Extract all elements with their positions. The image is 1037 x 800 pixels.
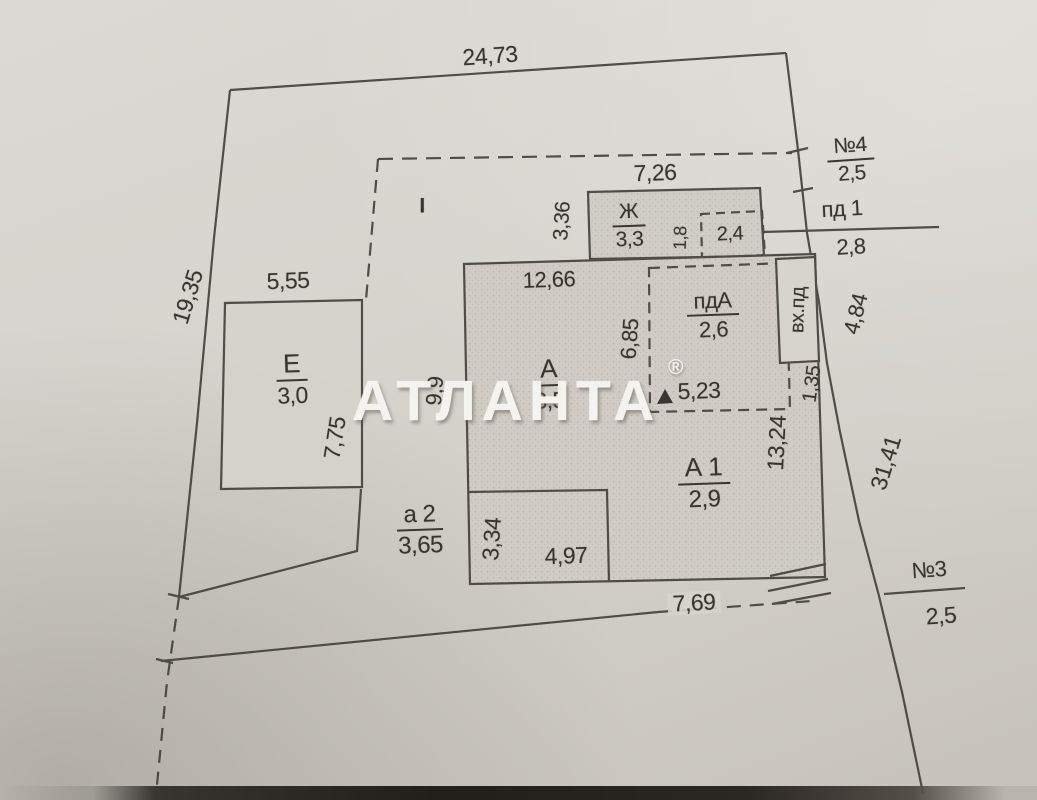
- dim-zh-inner-depth: 1,8: [671, 226, 690, 250]
- dim-a-width: 12,66: [522, 268, 575, 292]
- room-a1-letter: А 1: [677, 453, 730, 486]
- room-zh-area: 3,3: [615, 227, 644, 252]
- dim-a2-inner-side: 3,34: [479, 517, 505, 561]
- boundary-left-dashed-line: [156, 597, 179, 795]
- marker-n3-name: №3: [911, 558, 947, 582]
- marker-n4: №4 2,5: [826, 133, 877, 186]
- room-a1-area: 2,9: [688, 484, 721, 512]
- dim-zh-side: 3,36: [550, 201, 574, 241]
- dim-entry-side: 1,35: [800, 364, 825, 403]
- dim-pda-width: 5,23: [677, 379, 721, 403]
- n3-dimension-bar: [884, 588, 965, 594]
- dim-outer-bottom: 7,69: [667, 590, 721, 616]
- room-label-pda: пдА 2,6: [686, 288, 740, 342]
- yard-line-lower: [161, 612, 658, 661]
- agency-watermark: АТЛАНТА: [352, 368, 660, 434]
- room-label-a2: а 2 3,65: [396, 501, 444, 559]
- dim-pda-side: 6,85: [618, 318, 643, 360]
- room-pda-letter: пдА: [686, 288, 739, 317]
- room-label-a1: А 1 2,9: [677, 453, 731, 513]
- marker-n3-value: 2,5: [925, 603, 957, 628]
- room-pda-area: 2,6: [698, 315, 728, 341]
- dim-a2-inner-width: 4,97: [544, 544, 588, 568]
- photo-bottom-edge: [0, 786, 1037, 800]
- boundary-left-line: [179, 90, 230, 597]
- room-label-zh: Ж 3,3: [612, 200, 647, 251]
- section-number-label: I: [419, 196, 424, 217]
- room-a2-area: 3,65: [398, 530, 444, 559]
- marker-pd1-value: 2,8: [836, 235, 866, 258]
- marker-pd1-name: пд 1: [821, 197, 863, 221]
- room-e-letter: Е: [276, 350, 308, 382]
- marker-n4-name: №4: [826, 133, 875, 162]
- pd1-dimension-bar: [762, 227, 939, 232]
- dim-zh-inner-width: 2,4: [717, 224, 744, 245]
- yard-line-upper: [179, 489, 361, 597]
- section-dashed-top: [378, 153, 792, 159]
- marker-n4-value: 2,5: [837, 160, 866, 186]
- registered-trademark-icon: ®: [668, 356, 683, 380]
- dim-zh-width: 7,26: [633, 161, 677, 185]
- room-a2-letter: а 2: [396, 501, 443, 532]
- dim-e-width: 5,55: [266, 269, 310, 293]
- site-plan-photo: 24,73 19,35 4,84 31,41 7,69 №4 2,5 пд 1 …: [0, 0, 1037, 800]
- section-dashed-left: [366, 159, 378, 300]
- entry-porch-label: вх.пд: [787, 287, 809, 334]
- room-label-e: Е 3,0: [276, 350, 309, 408]
- dim-outer-top: 24,73: [462, 43, 519, 70]
- dim-a1-side: 13,24: [764, 415, 790, 471]
- room-zh-letter: Ж: [612, 200, 646, 227]
- room-e-area: 3,0: [277, 381, 308, 408]
